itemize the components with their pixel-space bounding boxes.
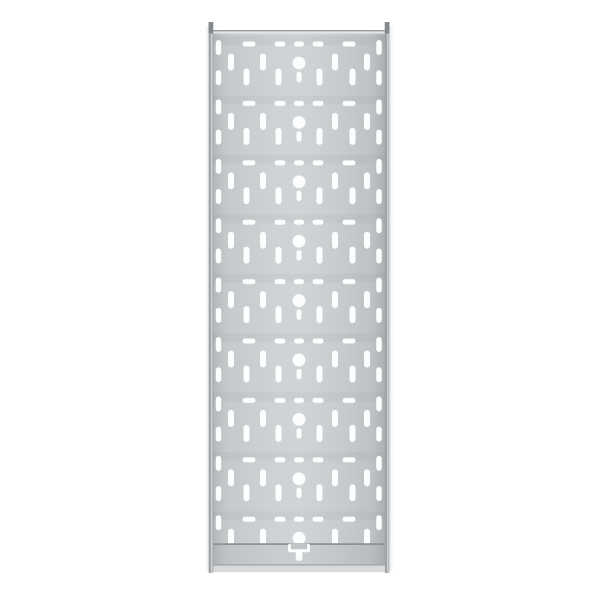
flange-bottom-line [212,564,386,566]
flange-fold [213,566,385,572]
tab-tongue [291,544,307,549]
rail-cap [209,22,214,34]
perforation-field [212,33,386,544]
outer-shadow-right [389,26,393,571]
top-edge-highlight [212,31,386,33]
top-edge-line [212,30,386,31]
rail-strip [385,22,390,573]
rail-cap [385,22,390,34]
outer-shadow-left [205,26,209,571]
tab-cutout-stem [296,550,303,561]
cable-tray-image [0,0,600,600]
product-photo-canvas [0,0,600,600]
side-rail-right [385,22,390,573]
side-rail-left [209,22,214,573]
rail-strip [209,22,214,573]
